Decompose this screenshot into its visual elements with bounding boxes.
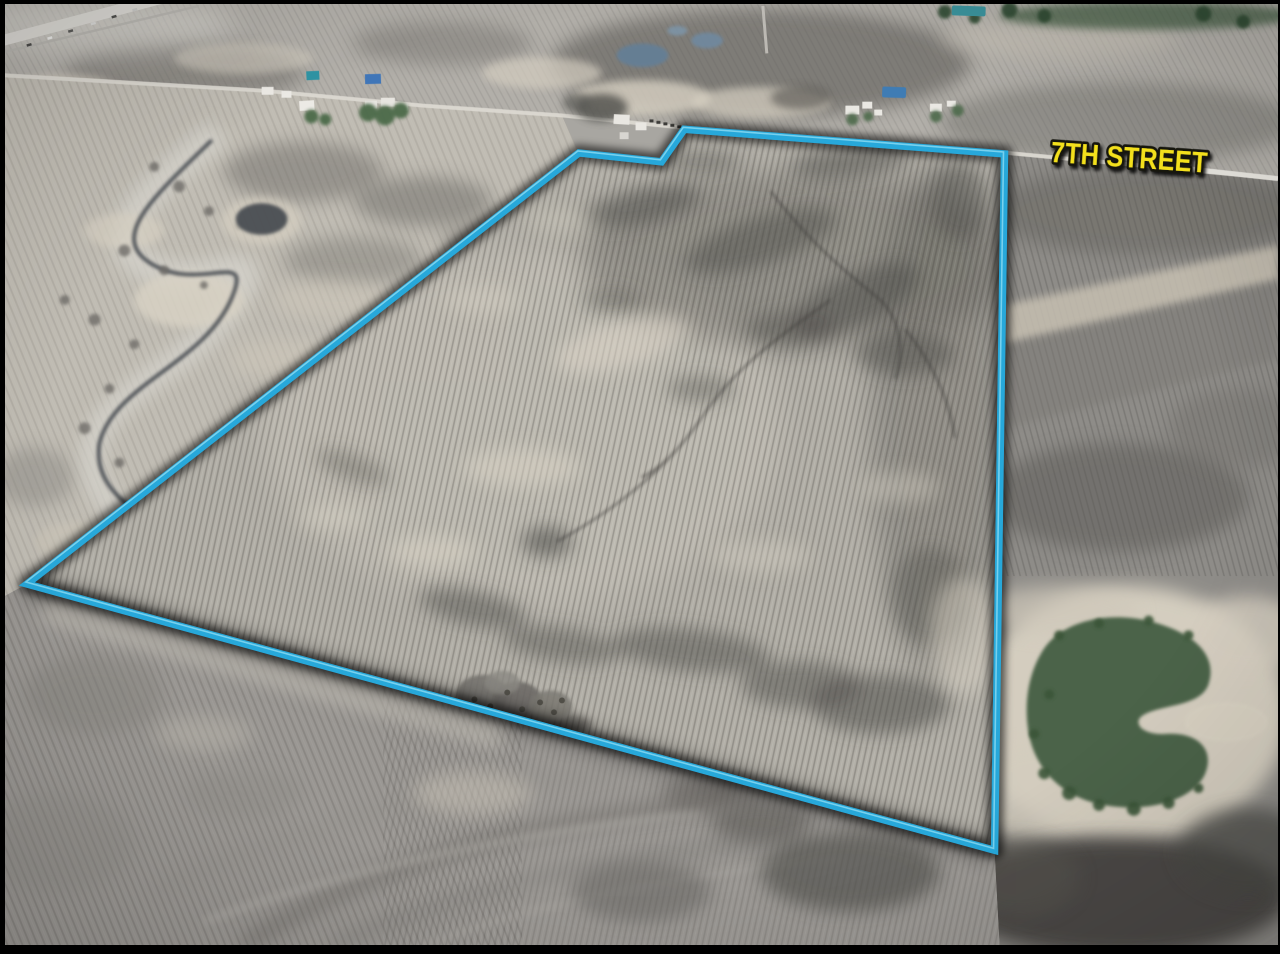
aerial-photo: 7TH STREET: [5, 4, 1278, 945]
screenshot-frame: 7TH STREET: [0, 0, 1280, 954]
aerial-photo-art: 7TH STREET: [5, 4, 1278, 945]
